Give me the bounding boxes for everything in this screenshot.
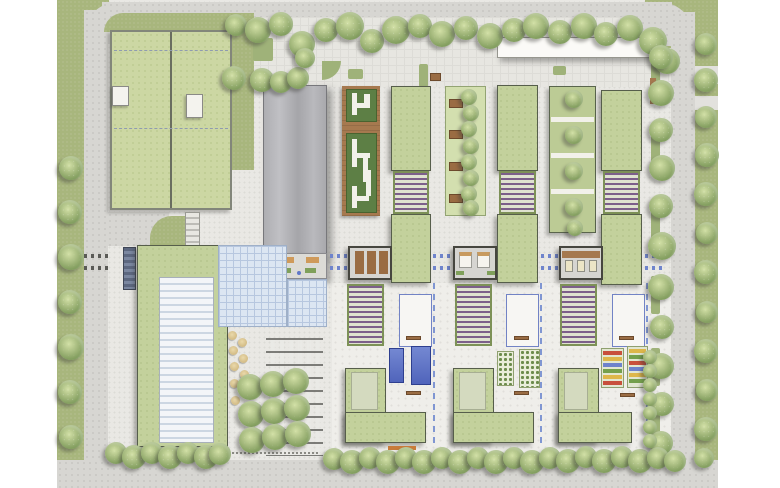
kiosk-box-3 (589, 260, 597, 272)
promenade-tree (245, 17, 271, 43)
glass-atrium-east-wing (287, 279, 327, 327)
west-band-tree (58, 290, 82, 314)
garden-room-path (551, 189, 594, 194)
parking-grove-tree (261, 398, 287, 424)
module-3-hedge (643, 420, 657, 434)
module-2-planting-grid-1 (497, 351, 514, 386)
module-1-pool-large (411, 346, 431, 385)
shrub-ball (238, 338, 247, 347)
north-building-2-roof-south (497, 214, 538, 283)
parking-grove-tree (285, 421, 311, 447)
parking-grove-tree (283, 368, 309, 394)
parking-grove-tree (284, 395, 310, 421)
spine-bench-row (330, 254, 349, 258)
west-hall-skylight (159, 277, 214, 443)
verge-field-east (232, 19, 254, 170)
west-band-tree (59, 425, 83, 449)
east-band-tree (694, 182, 718, 206)
orchard-tree (463, 200, 479, 216)
water-channel-2 (540, 283, 542, 447)
maze-garden-panel-2 (346, 133, 377, 213)
east-band-tree (694, 260, 718, 284)
east-band-tree (695, 33, 717, 55)
container-bar (603, 369, 622, 373)
east-band-tree (696, 222, 718, 244)
east-band-tree (694, 448, 714, 468)
street-canopy (497, 37, 662, 58)
east-band-tree (695, 106, 717, 128)
plaza-planter (430, 73, 441, 81)
module-3-hedge (643, 378, 657, 392)
terrace-table-2 (305, 268, 316, 273)
parking-grove-tree (262, 424, 288, 450)
promenade-tree (287, 67, 309, 89)
terrace-seat-2 (297, 271, 301, 275)
south-module-3-crops (560, 284, 597, 346)
north-building-1-roof-south (391, 214, 431, 283)
south-module-2-crops (455, 284, 492, 346)
parking-grove-tree (260, 371, 286, 397)
kiosk-box-2 (577, 260, 585, 272)
maze-path (357, 196, 369, 201)
promenade-tree (454, 16, 478, 40)
promenade-tree (594, 22, 618, 46)
promenade-tree (225, 14, 247, 36)
south-building-2-base (453, 412, 534, 443)
module-3-bench-a (619, 336, 634, 340)
spine-bench-row (433, 266, 452, 270)
promenade-tree (523, 13, 549, 39)
module-3-hedge (643, 406, 657, 420)
west-band-tree (59, 156, 83, 180)
kiosk-box-1 (565, 260, 573, 272)
south-module-1-crops (347, 284, 384, 346)
rooftop-unit-1 (112, 86, 129, 106)
orchard-tree (463, 105, 479, 121)
maze-path (366, 170, 371, 196)
promenade-tree (429, 21, 455, 47)
garden-room-tree (565, 162, 583, 180)
field-dash-line-2 (114, 128, 228, 130)
market-green-bed-1 (456, 271, 464, 275)
promenade-tree (502, 18, 526, 42)
spine-bench-row (433, 254, 452, 258)
spine-marking-west (84, 266, 108, 270)
kiosk-canopy (562, 251, 600, 258)
orchard-tree (463, 170, 479, 186)
north-building-1-roof (391, 86, 431, 171)
module-2-planting-grid-2 (519, 349, 540, 388)
container-bar (629, 361, 646, 365)
east-band-tree (694, 339, 718, 363)
spine-bench-row (330, 266, 349, 270)
promenade-tree (295, 48, 315, 68)
promenade-tree (382, 16, 410, 44)
orchard-tree (461, 89, 477, 105)
market-green-bed-2 (487, 271, 495, 275)
parking-grove-tree (238, 401, 264, 427)
east-verge-tree (648, 274, 674, 300)
promenade-tree (548, 20, 572, 44)
south-hedgerow-west (209, 443, 231, 465)
field-dash-line-1 (114, 50, 228, 52)
market-stall-1 (459, 252, 472, 268)
module-2-bench-b (514, 391, 529, 395)
water-channel-1 (433, 283, 435, 447)
module-2-bench-a (514, 336, 529, 340)
east-band-tree (694, 417, 718, 441)
parking-dotted-edge (223, 452, 318, 454)
north-building-3-roof-south (601, 214, 642, 285)
west-band-tree (58, 244, 84, 270)
plaza-hedge-3 (419, 64, 428, 87)
main-hall-building (263, 85, 327, 255)
site-plan (0, 0, 780, 488)
north-building-2-crop-court (499, 171, 536, 214)
east-verge-tree (649, 155, 675, 181)
shrub-ball (231, 396, 240, 405)
field-divider (170, 32, 172, 208)
south-hedgerow-east (664, 450, 686, 472)
promenade-tree (360, 29, 384, 53)
orchard-tree (461, 154, 477, 170)
shrub-ball (239, 354, 248, 363)
module-3-hedge (643, 392, 657, 406)
promenade-tree (269, 12, 293, 36)
north-building-3-roof (601, 90, 642, 171)
east-band-tree (696, 301, 718, 323)
plaza-hedge-2 (348, 69, 363, 79)
east-band-tree (696, 379, 718, 401)
promenade-tree (477, 23, 503, 49)
south-building-2-roof-panel (459, 372, 486, 410)
east-verge-tree (649, 118, 673, 142)
east-verge-tree (648, 232, 676, 260)
garden-room-path (551, 153, 594, 158)
south-building-3-base (558, 412, 632, 443)
garden-room-path (551, 117, 594, 122)
south-building-1-base (345, 412, 426, 443)
dining-table-1 (355, 251, 364, 274)
spine-bench-row (541, 266, 559, 270)
garden-room-tree (567, 220, 583, 236)
container-bar (603, 357, 622, 361)
west-band-tree (58, 200, 82, 224)
east-verge-tree (649, 194, 673, 218)
shrub-ball (228, 331, 237, 340)
module-3-hedge (643, 364, 657, 378)
garden-room-tree (565, 198, 583, 216)
east-verge-tree (648, 80, 674, 106)
module-1-bench-b (406, 391, 421, 395)
glass-atrium (218, 245, 287, 327)
south-building-3-roof-panel (564, 372, 588, 410)
promenade-tree (314, 18, 338, 42)
east-band-tree (694, 68, 718, 92)
shrub-ball (229, 346, 238, 355)
garden-room-tree (565, 126, 583, 144)
west-band-tree (58, 334, 84, 360)
terrace-awning-2 (306, 257, 319, 263)
module-3-hedge (643, 350, 657, 364)
parking-grove-tree (239, 427, 265, 453)
dining-table-3 (379, 251, 388, 274)
link-bridge (185, 212, 200, 246)
container-bar (603, 363, 622, 367)
east-verge-tree (650, 315, 674, 339)
spine-marking-west (84, 254, 108, 258)
module-3-bench-b (620, 393, 635, 397)
spine-bench-row (541, 254, 559, 258)
module-1-bench-a (406, 336, 421, 340)
entrance-tower (123, 247, 136, 290)
shrub-ball (230, 362, 239, 371)
east-verge-tree (649, 45, 673, 69)
container-bar (603, 351, 622, 355)
west-band-tree (58, 380, 82, 404)
east-band-tree (695, 143, 719, 167)
container-bar (603, 381, 622, 385)
maze-path (364, 94, 370, 108)
orchard-tree (463, 138, 479, 154)
promenade-tree (222, 66, 246, 90)
north-building-2-roof (497, 85, 538, 171)
parking-grove-tree (237, 374, 263, 400)
road-west (84, 10, 108, 488)
module-3-hedge (643, 434, 657, 448)
plaza-hedge-4 (553, 66, 566, 75)
north-building-3-crop-court (603, 171, 640, 214)
south-building-1-roof-panel (351, 372, 378, 410)
market-stall-2 (477, 252, 490, 268)
rooftop-unit-2 (186, 94, 203, 118)
north-building-1-crop-court (393, 171, 429, 214)
orchard-tree (461, 121, 477, 137)
dining-table-2 (367, 251, 376, 274)
spine-bench-row (645, 266, 662, 270)
module-1-pool-small (389, 348, 404, 383)
container-bar (603, 375, 622, 379)
garden-room-tree (565, 90, 583, 108)
